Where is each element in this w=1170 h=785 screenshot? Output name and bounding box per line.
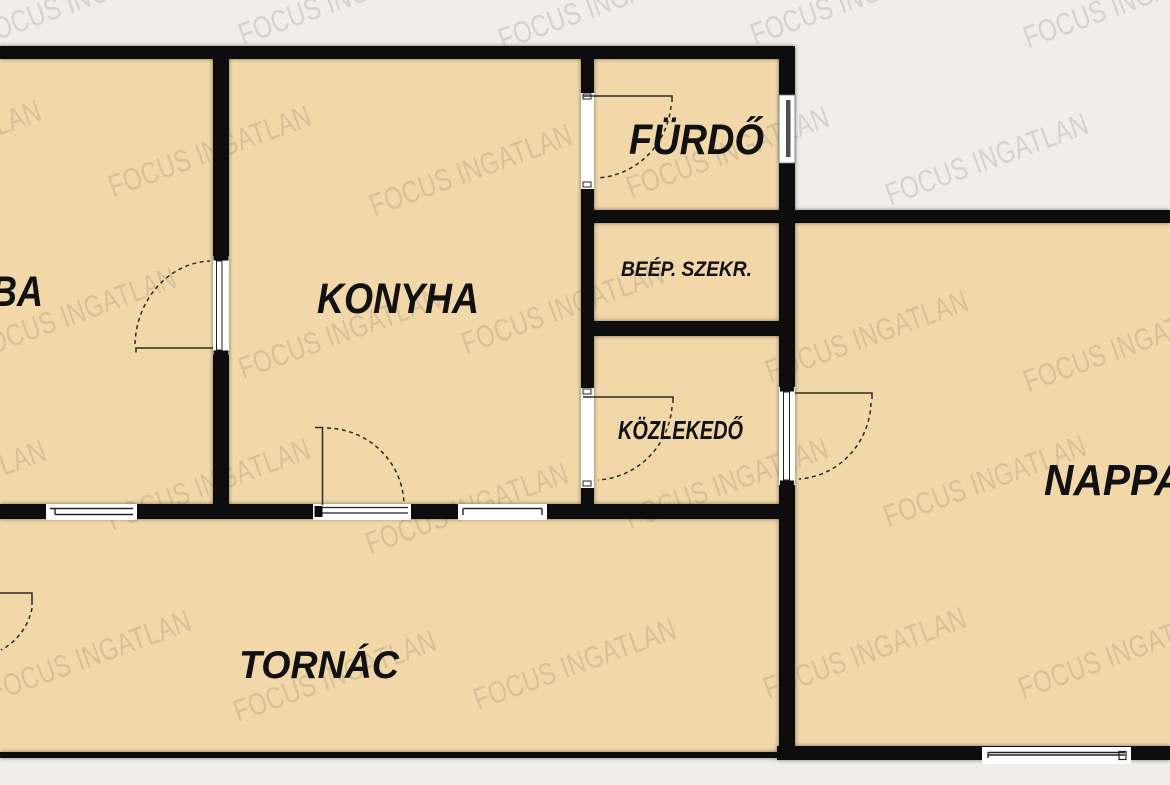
svg-text:KÖZLEKEDŐ: KÖZLEKEDŐ	[618, 415, 743, 445]
svg-text:NAPPALI: NAPPALI	[1044, 456, 1170, 505]
svg-text:KONYHA: KONYHA	[317, 275, 479, 323]
svg-text:FÜRDŐ: FÜRDŐ	[629, 116, 764, 164]
svg-text:TORNÁC: TORNÁC	[239, 643, 400, 687]
svg-text:BEÉP. SZEKR.: BEÉP. SZEKR.	[621, 258, 752, 281]
svg-text:BA: BA	[0, 268, 43, 316]
